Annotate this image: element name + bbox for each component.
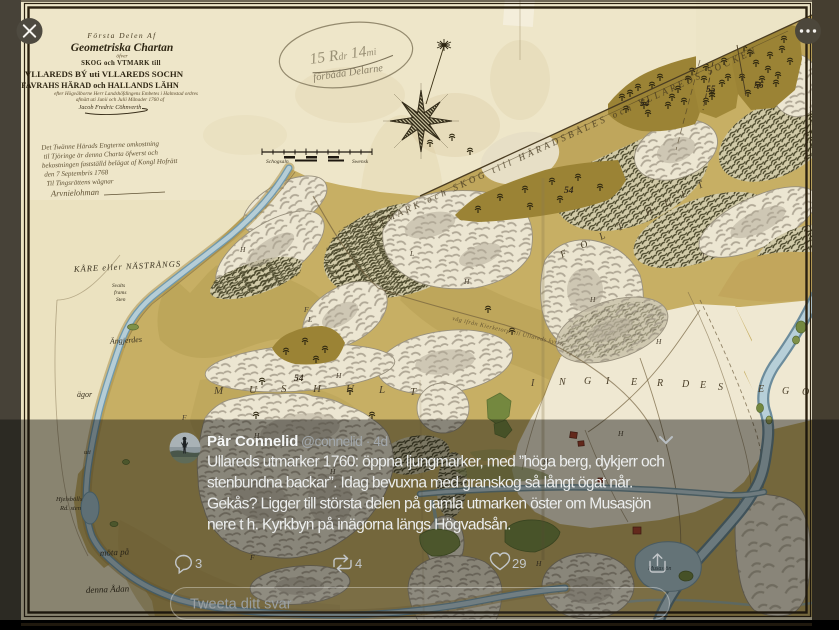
- svg-text:E: E: [757, 384, 764, 395]
- svg-text:Första Delen Af: Första Delen Af: [86, 31, 156, 40]
- svg-text:stenbundna backar”. Idag bevux: stenbundna backar”. Idag bevuxna med gra…: [207, 474, 633, 492]
- svg-text:U: U: [346, 383, 355, 395]
- svg-text:öfver: öfver: [116, 53, 128, 60]
- svg-text:Jacob Fredric Cöhnverth: Jacob Fredric Cöhnverth: [79, 104, 142, 111]
- svg-text:R: R: [656, 378, 663, 389]
- svg-text:frams: frams: [114, 289, 127, 296]
- svg-text:efter Högvälborne Herr Landshö: efter Högvälborne Herr Landshöfdingens E…: [54, 90, 198, 97]
- svg-text:H: H: [589, 295, 596, 304]
- svg-text:FAVRAHS HÄRAD och HALLANDS LÄH: FAVRAHS HÄRAD och HALLANDS LÄHN: [21, 81, 179, 90]
- svg-text:H: H: [655, 337, 662, 346]
- svg-text:29: 29: [512, 556, 526, 571]
- svg-text:H: H: [239, 245, 246, 254]
- svg-text:Svalts: Svalts: [112, 283, 125, 289]
- svg-text:L: L: [701, 251, 706, 260]
- svg-text:SKOG och VTMARK till: SKOG och VTMARK till: [81, 60, 161, 67]
- svg-text:D: D: [681, 379, 690, 390]
- svg-text:56: 56: [754, 81, 764, 91]
- svg-text:S: S: [281, 383, 287, 395]
- svg-text:I: I: [605, 376, 610, 387]
- svg-text:3: 3: [195, 556, 202, 571]
- svg-text:54: 54: [294, 374, 304, 384]
- svg-text:Arvnielohman: Arvnielohman: [50, 187, 99, 199]
- svg-text:S: S: [718, 382, 723, 393]
- svg-text:54: 54: [564, 186, 574, 196]
- svg-text:Ullareds utmarker 1760: öppna: Ullareds utmarker 1760: öppna ljungmarke…: [207, 454, 664, 471]
- svg-text:E: E: [630, 377, 637, 388]
- svg-text:E: E: [699, 380, 706, 391]
- svg-text:54: 54: [640, 99, 650, 109]
- svg-text:I: I: [530, 378, 535, 389]
- svg-text:N: N: [558, 377, 567, 388]
- svg-text:Geometriska Chartan: Geometriska Chartan: [71, 42, 174, 54]
- svg-text:55: 55: [706, 85, 716, 95]
- svg-text:U: U: [249, 384, 258, 396]
- svg-text:Gekås? Ligger till största del: Gekås? Ligger till största delen på gaml…: [207, 495, 651, 513]
- svg-text:G: G: [782, 386, 789, 397]
- svg-text:nere t h. Kyrkbyn på inägorna: nere t h. Kyrkbyn på inägorna längs Högv…: [207, 516, 511, 534]
- svg-text:F: F: [303, 305, 309, 314]
- svg-text:afmätt uti Junii och Julii Mån: afmätt uti Junii och Julii Månader 1760 …: [76, 96, 166, 103]
- svg-text:H: H: [312, 383, 322, 395]
- svg-text:4: 4: [355, 556, 362, 571]
- svg-text:VLLAREDS BÝ uti VLLAREDS SOCHN: VLLAREDS BÝ uti VLLAREDS SOCHN: [25, 69, 184, 79]
- svg-text:@connelid · 4d: @connelid · 4d: [301, 434, 388, 449]
- svg-text:L: L: [378, 384, 385, 396]
- svg-text:T: T: [410, 386, 417, 398]
- svg-text:L: L: [409, 249, 414, 258]
- svg-text:ägor: ägor: [77, 390, 93, 399]
- svg-text:Schogsaln: Schogsaln: [266, 159, 289, 165]
- svg-text:L: L: [307, 315, 312, 324]
- svg-text:Sten: Sten: [116, 297, 126, 303]
- svg-text:Pär Connelid: Pär Connelid: [207, 433, 298, 450]
- svg-text:Tweeta ditt svar: Tweeta ditt svar: [190, 597, 292, 613]
- svg-text:H: H: [335, 371, 342, 380]
- svg-text:G: G: [584, 376, 591, 387]
- svg-text:M: M: [213, 385, 224, 397]
- svg-text:H: H: [463, 277, 470, 286]
- svg-text:Swensk: Swensk: [352, 159, 369, 165]
